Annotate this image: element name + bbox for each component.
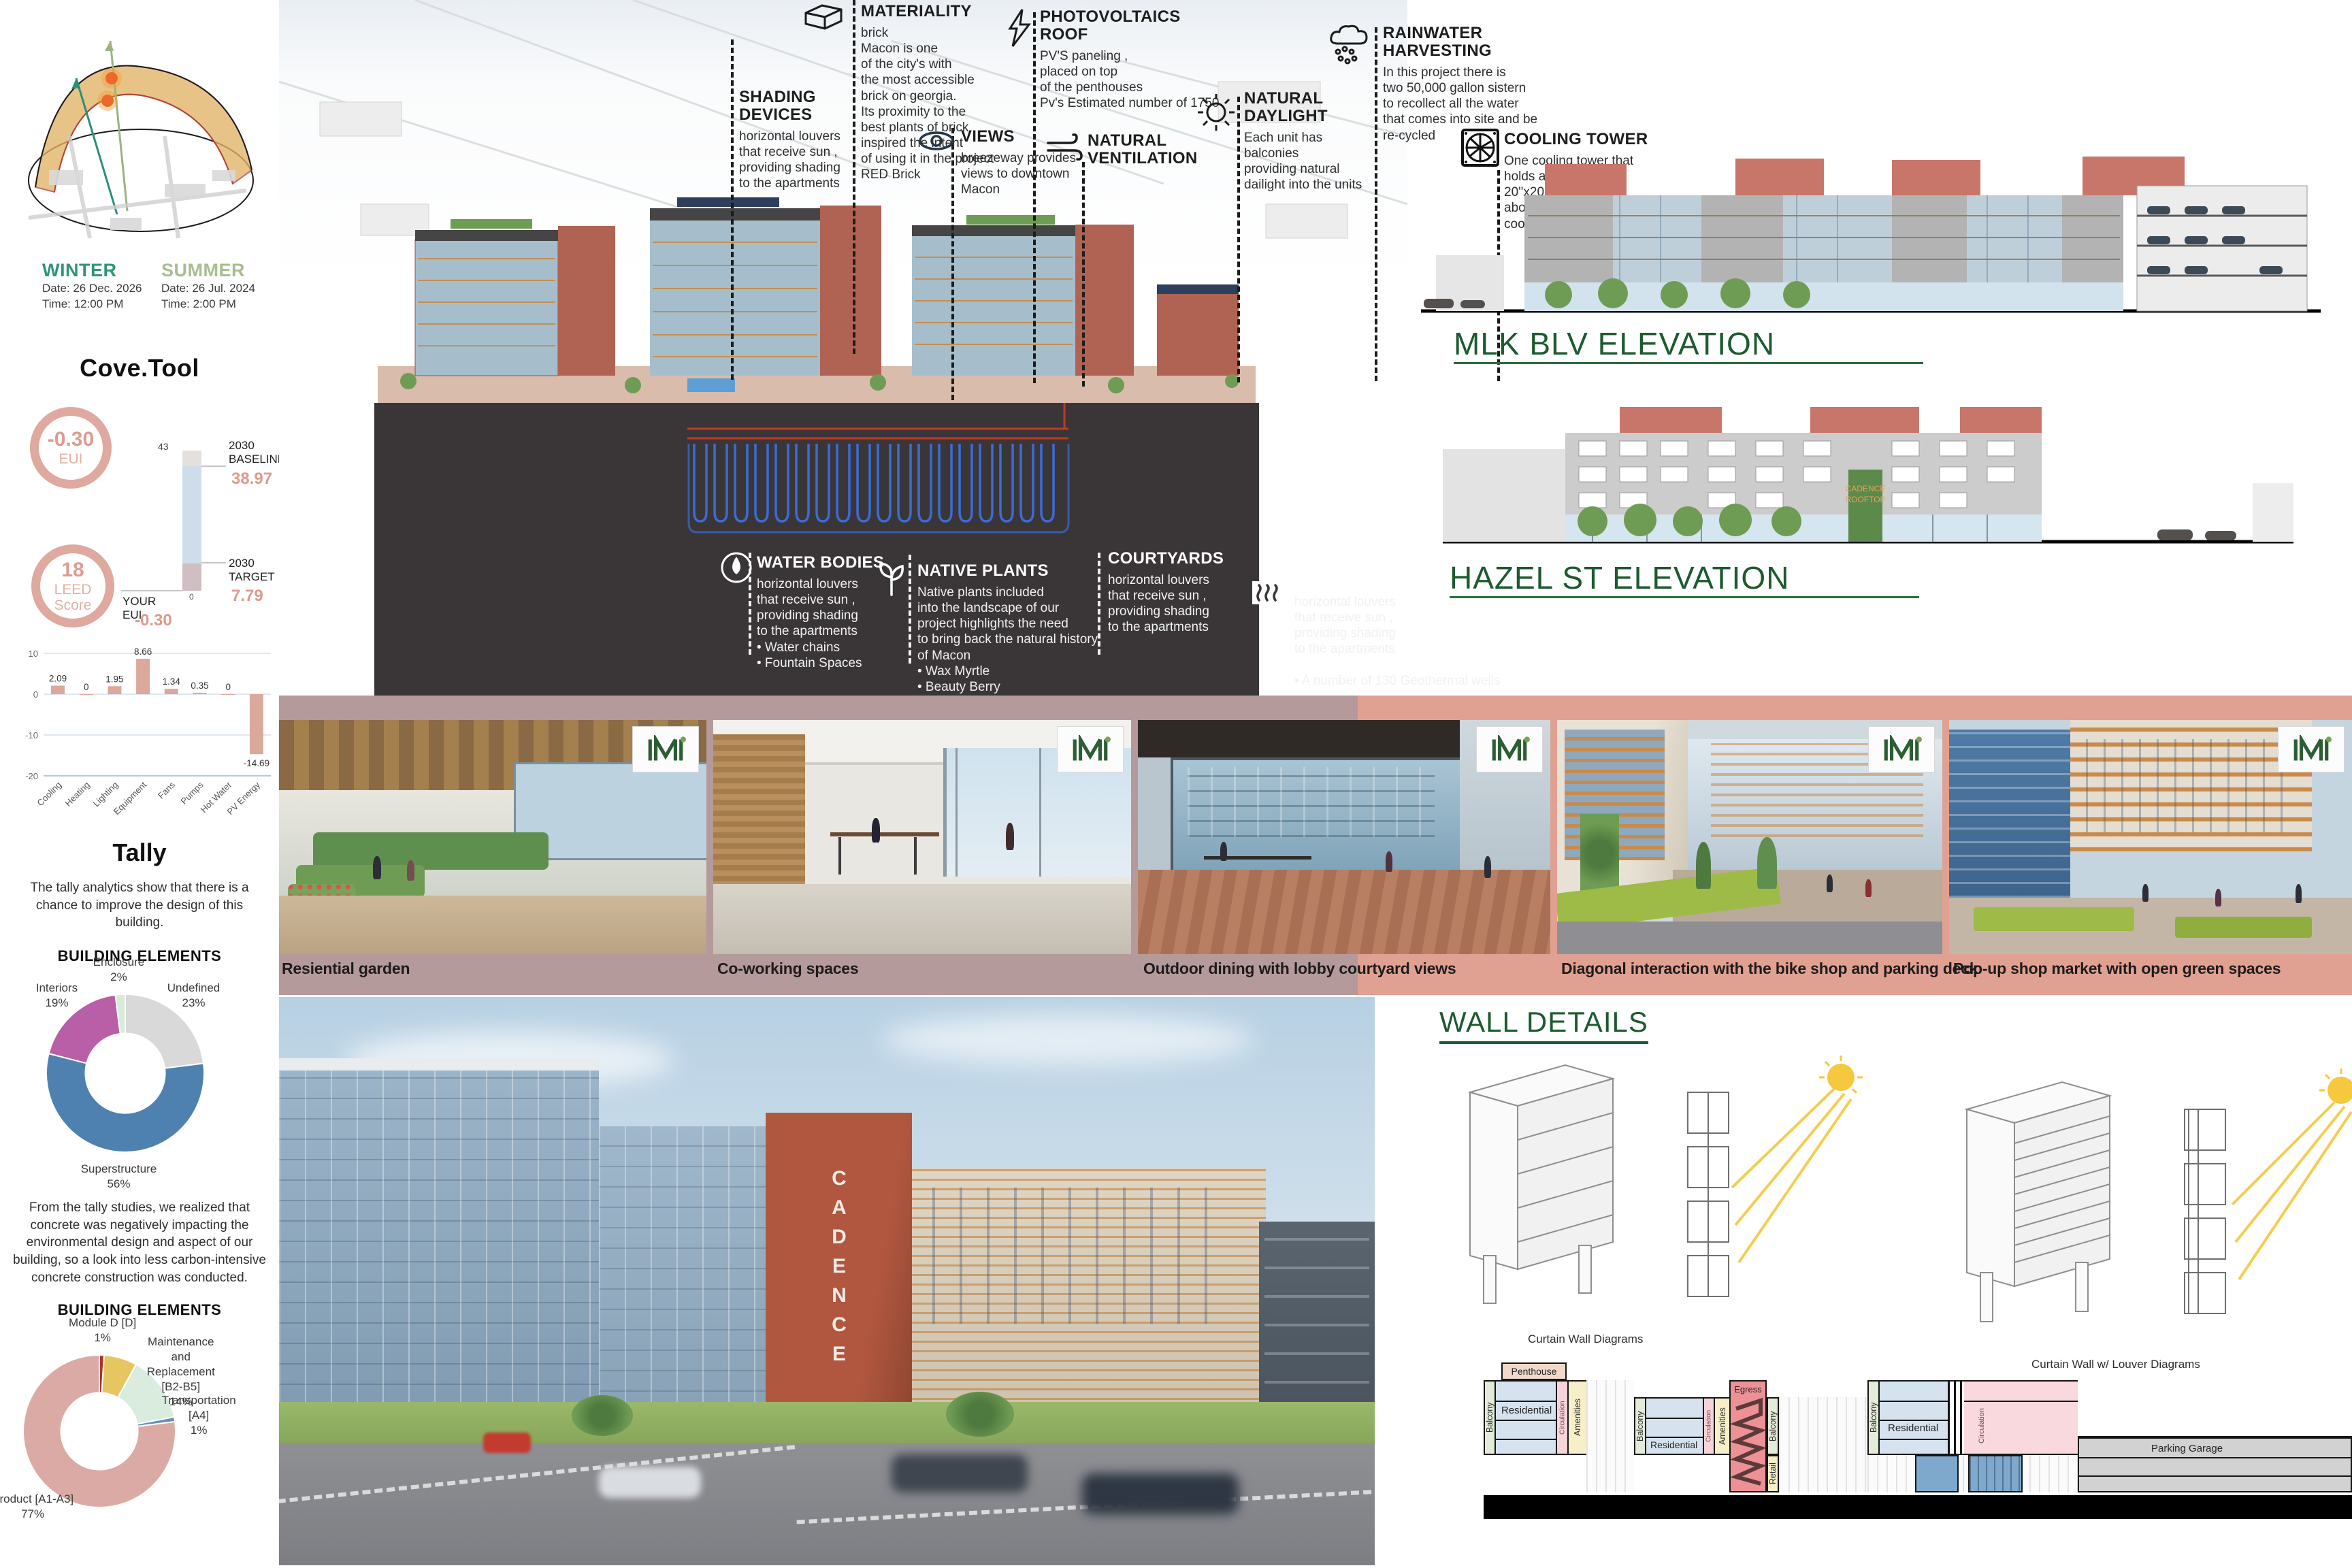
penthouse-label: Penthouse [1512, 1366, 1557, 1377]
water-drop-icon [720, 551, 753, 584]
callout-body: horizontal louvers that receive sun , pr… [1108, 572, 1264, 636]
wall-details-title: WALL DETAILS [1439, 1006, 1648, 1044]
ground-bar [1484, 1495, 2352, 1519]
rain-cloud-icon [1327, 23, 1373, 67]
curtain-wall-diagram [1443, 1051, 1878, 1330]
tally-title: Tally [0, 838, 279, 867]
donut-slice [46, 1053, 204, 1152]
lightning-icon [1006, 8, 1033, 49]
callout-title: SHADING DEVICES [739, 88, 896, 124]
donut-slice-label: Enclosure2% [93, 955, 145, 985]
project-logo [633, 727, 698, 772]
analytics-sidebar: WINTER Date: 26 Dec. 2026 Time: 12:00 PM… [0, 0, 279, 1568]
tally-paragraph-1: The tally analytics show that there is a… [19, 879, 260, 932]
summer-time: Time: 2:00 PM [161, 297, 255, 312]
leed-label: LEED [54, 582, 92, 598]
building-elements-heading-2: BUILDING ELEMENTS [0, 1301, 279, 1319]
callout-ventilation: NATURAL VENTILATION [1088, 132, 1237, 172]
leed-label2: Score [54, 598, 92, 613]
callout-title: NATIVE PLANTS [917, 562, 1135, 580]
render-popup-market [1949, 720, 2352, 954]
brick-icon [802, 3, 845, 31]
cadence-tower-sign: CADENCE [828, 1167, 851, 1372]
svg-text:Fans: Fans [156, 779, 177, 800]
your-eui-value: -0.30 [135, 611, 172, 630]
winter-date: Date: 26 Dec. 2026 [42, 281, 142, 297]
balcony-label: Balcony [1635, 1399, 1645, 1454]
hazel-elevation-drawing: CADENCE ROOFTOP [1416, 367, 2352, 548]
eui-label: EUI [59, 451, 82, 467]
render-outdoor-dining [1138, 720, 1550, 954]
curtain-wall-label: Curtain Wall Diagrams [1528, 1333, 1643, 1346]
callout-title: COOLING TOWER [1504, 131, 1674, 148]
hazel-elevation-label: HAZEL ST ELEVATION [1450, 559, 1789, 596]
presentation-board: WINTER Date: 26 Dec. 2026 Time: 12:00 PM… [0, 0, 2352, 1568]
callout-native-plants: NATIVE PLANTS Native plants included int… [917, 562, 1135, 710]
project-logo [1058, 727, 1123, 772]
callout-body: Native plants included into the landscap… [917, 585, 1135, 710]
baseline-label: 2030 BASELINE [229, 439, 285, 467]
parking-garage-block: Parking Garage [2078, 1436, 2352, 1492]
callout-title: NATURAL VENTILATION [1088, 132, 1237, 167]
callout-title: COURTYARDS [1108, 550, 1264, 568]
callout-title: PHOTOVOLTAICS ROOF [1040, 8, 1264, 44]
render-bike-shop [1557, 720, 1942, 954]
caption-popup-market: Pop-up shop market with open green space… [1953, 960, 2281, 978]
callout-title: MATERIALITY [861, 3, 1017, 20]
caption-outdoor-dining: Outdoor dining with lobby courtyard view… [1143, 960, 1456, 978]
residential-label: Residential [1501, 1405, 1552, 1416]
callout-title: RAINWATER HARVESTING [1383, 24, 1560, 60]
svg-text:-10: -10 [25, 730, 38, 740]
caption-bike-shop: Diagonal interaction with the bike shop … [1561, 960, 1978, 978]
plant-icon [874, 557, 909, 596]
geothermal-icon [1247, 565, 1288, 607]
callout-shading: SHADING DEVICES horizontal louvers that … [739, 88, 896, 192]
egress-shaft: Egress [1729, 1380, 1767, 1492]
energy-bar-chart: 100-10-202.09Cooling0Heating1.95Lighting… [4, 648, 276, 819]
leed-ring: 18 LEED Score [31, 544, 114, 627]
blurred-car [599, 1467, 701, 1498]
benchmark-bar [182, 451, 201, 591]
cyclists [483, 1433, 531, 1453]
target-value: 7.79 [231, 587, 263, 606]
parking-garage-label: Parking Garage [2151, 1443, 2223, 1454]
curtain-wall-louver-diagram [1940, 1062, 2352, 1347]
energy-bar-chart-svg: 100-10-202.09Cooling0Heating1.95Lighting… [4, 648, 276, 819]
project-logo [1869, 727, 1934, 772]
svg-text:Heating: Heating [63, 780, 92, 808]
callout-title: NATURAL DAYLIGHT [1244, 90, 1421, 125]
svg-text:Cooling: Cooling [35, 780, 63, 808]
mlk-elevation-label: MLK BLV ELEVATION [1454, 325, 1775, 362]
residential-label: Residential [1888, 1422, 1938, 1434]
callout-body: Each unit has balconies providing natura… [1244, 130, 1421, 193]
penthouse-box: Penthouse [1501, 1362, 1567, 1380]
svg-text:1.34: 1.34 [163, 676, 181, 687]
svg-text:0: 0 [84, 682, 89, 692]
circulation-label: Circulation [1704, 1399, 1714, 1454]
blurred-car [1082, 1473, 1239, 1514]
svg-text:10: 10 [29, 649, 38, 659]
benchmark-zero: 0 [189, 592, 194, 602]
baseline-value: 38.97 [231, 470, 272, 489]
summer-date: Date: 26 Jul. 2024 [161, 281, 255, 297]
svg-text:0: 0 [33, 689, 38, 700]
cove-tool-title: Cove.Tool [0, 354, 279, 382]
render-coworking-spaces [713, 720, 1131, 954]
summer-block: SUMMER Date: 26 Jul. 2024 Time: 2:00 PM [161, 260, 255, 312]
svg-text:0: 0 [225, 682, 231, 692]
caption-residential-garden: Resiential garden [282, 960, 410, 978]
svg-text:8.66: 8.66 [134, 648, 152, 657]
callout-daylight: NATURAL DAYLIGHT Each unit has balconies… [1244, 90, 1421, 193]
sun-icon [1195, 91, 1237, 133]
residential-label: Residential [1650, 1439, 1697, 1450]
callout-courtyards: COURTYARDS horizontal louvers that recei… [1108, 550, 1264, 636]
project-logo [1477, 727, 1542, 772]
eui-value: -0.30 [48, 428, 94, 451]
building-elements-donut-2: Module D [D]1%Maintenance and Replacemen… [19, 1351, 189, 1521]
eui-ring: -0.30 EUI [30, 407, 112, 489]
target-label: 2030 TARGET [229, 557, 275, 585]
svg-text:ROOFTOP: ROOFTOP [1845, 495, 1885, 504]
wind-icon [1045, 133, 1083, 162]
callout-body: horizontal louvers that receive sun , pr… [1294, 594, 1512, 689]
balcony-label: Balcony [1485, 1382, 1494, 1454]
eye-icon [917, 129, 955, 152]
retail-strip: Retail [1767, 1455, 1779, 1492]
benchmark-top-value: 43 [158, 441, 169, 452]
site-axon-panel: MATERIALITY brick Macon is one of the ci… [279, 0, 1407, 701]
blurred-car [892, 1454, 1028, 1492]
amenities-label: Amenities [1715, 1399, 1730, 1454]
building-section-diagram: Penthouse Balcony Residential Circulatio… [1484, 1361, 2352, 1524]
winter-label: WINTER [42, 260, 142, 281]
sun-path-diagram [8, 14, 267, 245]
winter-time: Time: 12:00 PM [42, 297, 142, 312]
svg-text:-14.69: -14.69 [244, 758, 269, 768]
svg-text:2.09: 2.09 [49, 673, 67, 683]
building-elements-donut-1: Undefined23%Superstructure56%Interiors19… [42, 990, 219, 1167]
retail-label: Retail [1768, 1456, 1778, 1491]
svg-text:1.95: 1.95 [105, 674, 123, 684]
balcony-label: Balcony [1768, 1399, 1778, 1454]
donut-slice-label: Module D [D]1% [69, 1316, 136, 1345]
callout-body: horizontal louvers that receive sun , pr… [739, 129, 896, 192]
winter-block: WINTER Date: 26 Dec. 2026 Time: 12:00 PM [42, 260, 142, 312]
amenities-label: Amenities [1569, 1382, 1586, 1454]
donut-slice-label: Superstructure56% [81, 1162, 157, 1192]
mlk-elevation-drawing [1416, 153, 2352, 320]
svg-text:0.35: 0.35 [191, 681, 208, 691]
cadence-tower: CADENCE [766, 1113, 912, 1426]
leed-value: 18 [61, 559, 84, 582]
circulation-label: Circulation [1557, 1382, 1567, 1454]
svg-text:-20: -20 [25, 771, 38, 781]
tally-paragraph-2: From the tally studies, we realized that… [10, 1199, 269, 1286]
summer-label: SUMMER [161, 260, 255, 281]
building_elements_1-svg [42, 990, 208, 1156]
donut-slice-label: Transportation [A4]1% [162, 1393, 236, 1438]
donut-slice-label: Undefined23% [167, 981, 220, 1011]
circulation-label: Circulation [1976, 1402, 1987, 1450]
caption-coworking: Co-working spaces [717, 960, 859, 978]
donut-slice-label: Product [A1-A3]77% [0, 1492, 73, 1522]
balcony-label: Balcony [1869, 1382, 1878, 1454]
svg-text:Pumps: Pumps [178, 779, 206, 806]
hazel-sign-text: CADENCE [1846, 484, 1886, 493]
render-residential-garden [279, 720, 706, 954]
street-render: CADENCE [279, 997, 1375, 1565]
donut-slice-label: Interiors19% [36, 981, 78, 1011]
project-logo [2278, 727, 2344, 772]
